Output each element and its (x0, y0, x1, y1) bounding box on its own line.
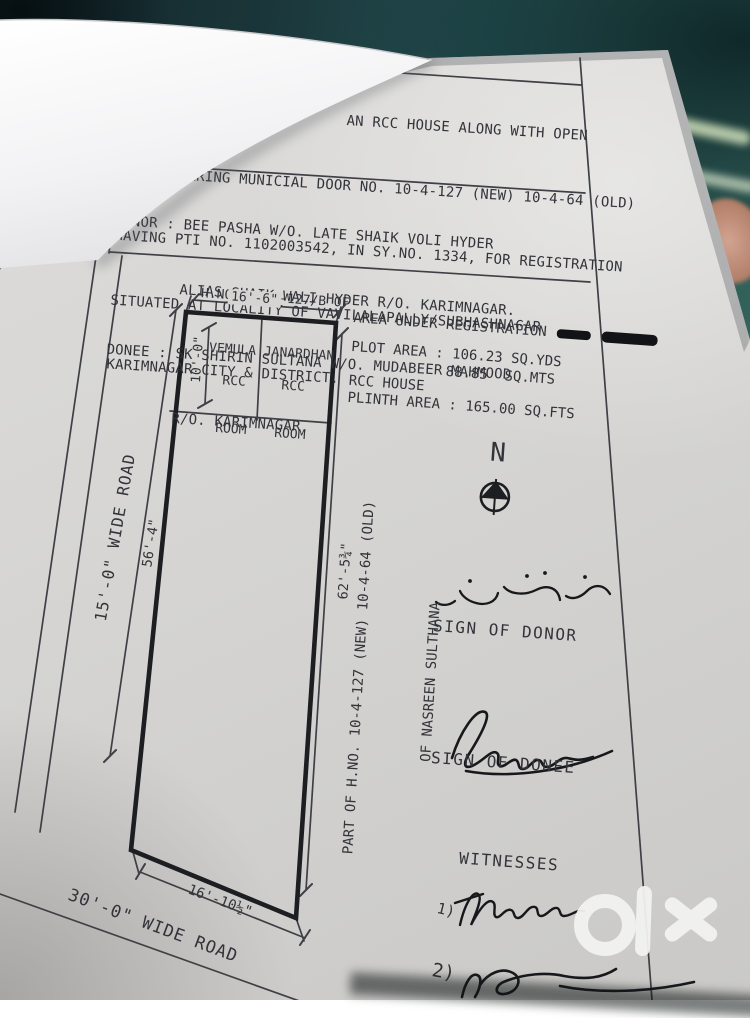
left-road-line-outer (15, 243, 98, 812)
room-label-line: RCC (212, 373, 257, 392)
north-letter: N (474, 438, 522, 467)
adjacent-top-line2: VEMULA JANARDHAN (183, 338, 360, 368)
legend-dash (556, 328, 591, 339)
photographed-plan-document: { "colors": { "paper": "#d6d5d3", "ink":… (0, 0, 750, 1000)
donor-line: DONOR : BEE PASHA W/O. LATE SHAIK VOLI H… (114, 211, 520, 258)
room-label-line: RCC (271, 378, 316, 397)
olx-watermark (572, 882, 750, 972)
room1-label: RCC ROOM (207, 341, 259, 456)
adjacent-right-line2: OF NASREEN SULTHANA (407, 492, 454, 873)
room2-label: RCC ROOM (266, 346, 318, 461)
room-label-line: ROOM (267, 425, 312, 444)
adjacent-owner-right: PART OF H.NO. 10-4-127 (NEW) 10-4-64 (OL… (288, 484, 479, 874)
adjacent-right-line1: PART OF H.NO. 10-4-127 (NEW) 10-4-64 (OL… (335, 487, 382, 868)
compass-icon (470, 464, 520, 519)
room-label-line: ROOM (208, 420, 253, 439)
legend-dash (601, 331, 658, 346)
olx-o-icon (574, 894, 636, 956)
witness1-signature (455, 894, 584, 925)
olx-l-icon (635, 886, 652, 956)
title-line: AN SHOWING THE AN RCC HOUSE ALONG WITH O… (122, 97, 640, 151)
north-indicator: N (470, 438, 522, 523)
